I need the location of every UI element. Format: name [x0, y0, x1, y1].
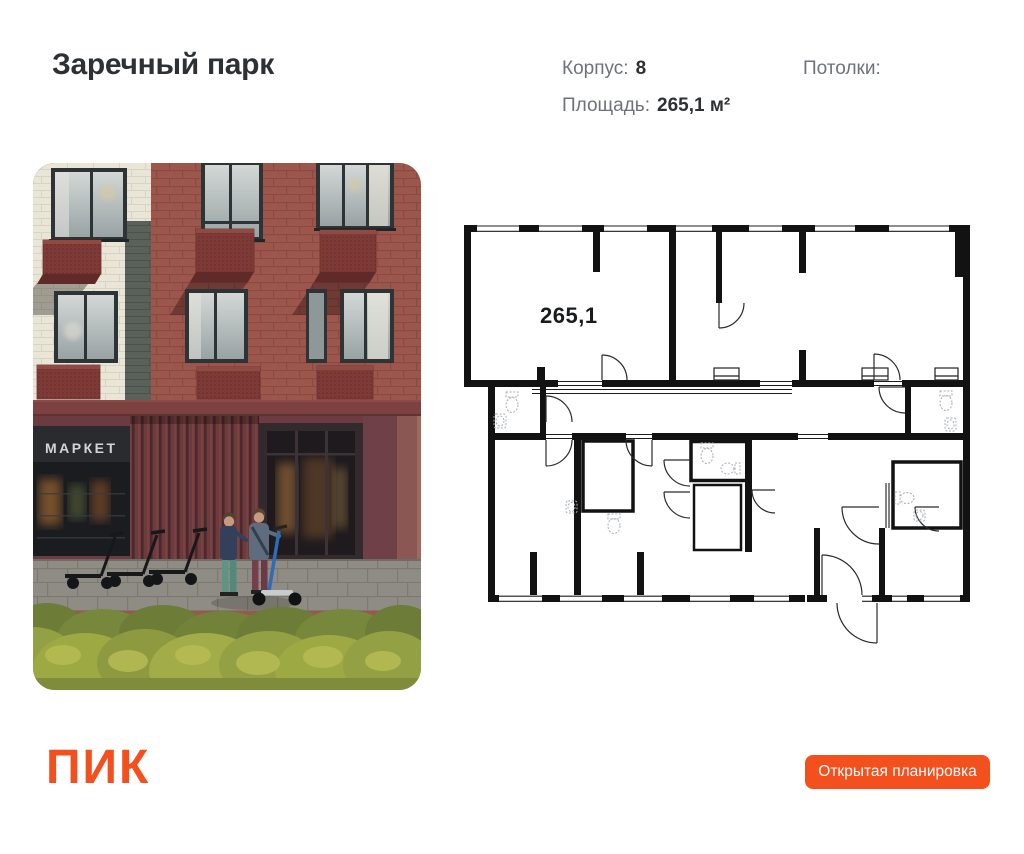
- building-photo-illustration: МАРКЕТ: [33, 163, 421, 690]
- area-label: Площадь:: [562, 95, 650, 117]
- spec-korpus: Корпус: 8: [562, 58, 646, 80]
- open-layout-button[interactable]: Открытая планировка: [805, 755, 990, 789]
- entrance-doors: [259, 423, 363, 561]
- window-row-2: [54, 289, 394, 363]
- spec-ceilings: Потолки:: [803, 58, 881, 80]
- page-title: Заречный парк: [52, 48, 274, 82]
- spec-area: Площадь: 265,1 м²: [562, 95, 730, 117]
- storefront: МАРКЕТ: [33, 426, 130, 556]
- ceilings-label: Потолки:: [803, 58, 881, 80]
- korpus-value: 8: [636, 58, 647, 80]
- bushes: [33, 603, 421, 690]
- pik-logo[interactable]: ПИК: [46, 744, 150, 792]
- floor-plan-drawing: 265,1: [462, 222, 974, 662]
- listing-card: Заречный парк Корпус: 8 Потолки: Площадь…: [0, 0, 1024, 854]
- area-value: 265,1 м²: [657, 95, 730, 117]
- plan-area-label: 265,1: [540, 303, 598, 328]
- ac-boxes-row-2: [37, 365, 373, 399]
- floor-plan: 265,1: [462, 222, 974, 662]
- korpus-label: Корпус:: [562, 58, 629, 80]
- market-sign-text: МАРКЕТ: [45, 440, 118, 456]
- building-photo: МАРКЕТ: [33, 163, 421, 690]
